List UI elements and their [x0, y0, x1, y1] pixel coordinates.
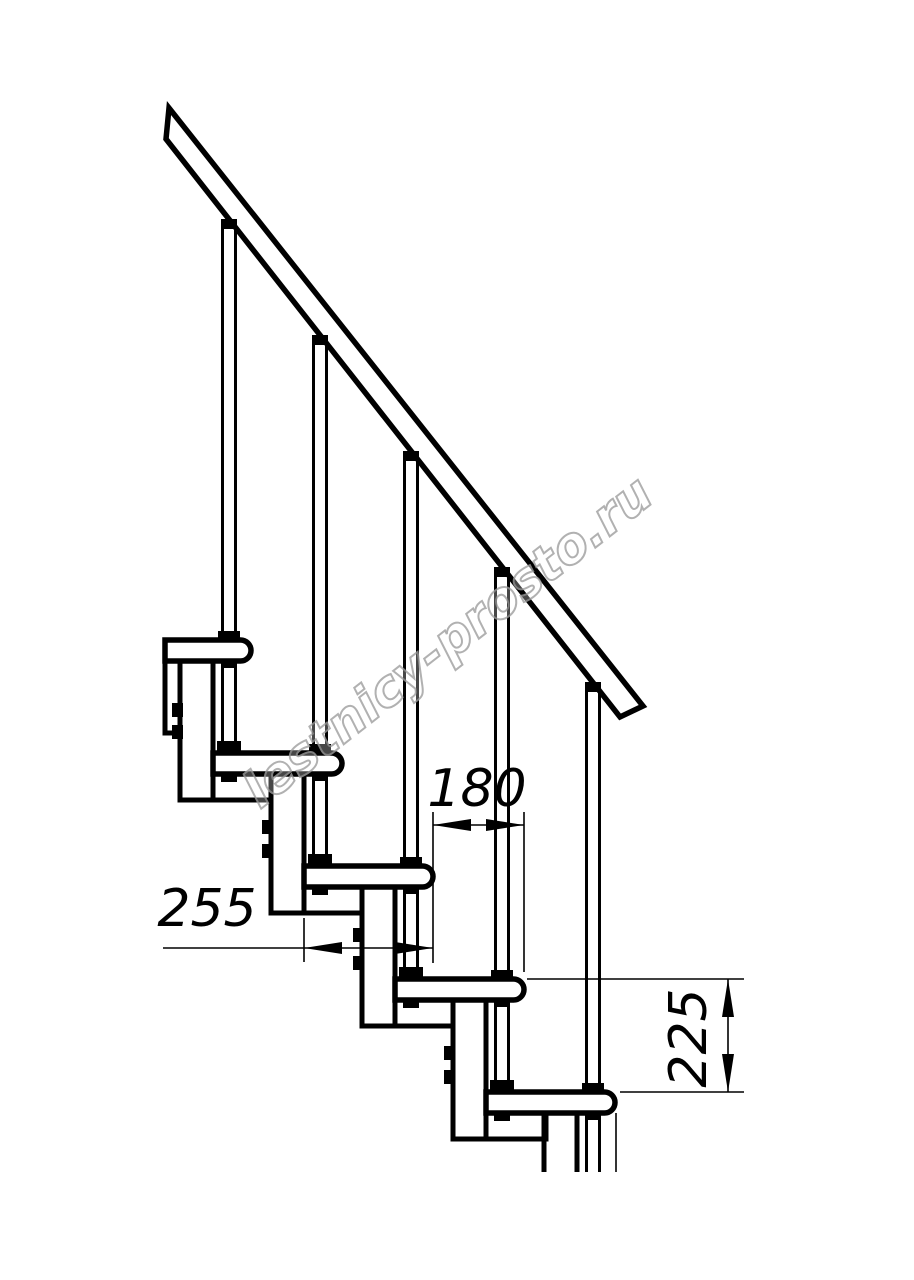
tread-5: [486, 1092, 615, 1113]
stringer-module-5: [486, 1113, 616, 1172]
stringer-module-3: [304, 887, 395, 1026]
tread-1: [165, 640, 251, 661]
dimension-step-rise: 225: [527, 979, 744, 1092]
dimension-label-180: 180: [427, 759, 526, 819]
staircase-technical-drawing: 180 255 225 lestnicy-prosto.ru: [0, 0, 914, 1280]
baluster-1: [223, 219, 236, 753]
stringer-module-1: [165, 661, 213, 800]
tread-4: [395, 979, 524, 1000]
baluster-3: [405, 451, 418, 979]
dimension-label-255: 255: [157, 879, 256, 939]
tread-3: [304, 866, 433, 887]
stringer-module-4: [395, 1000, 486, 1139]
baluster-4: [496, 567, 509, 1092]
dimension-step-run: 180: [427, 759, 526, 972]
baluster-2: [314, 335, 327, 866]
dimension-label-225: 225: [659, 988, 719, 1087]
drawing-canvas: 180 255 225 lestnicy-prosto.ru: [0, 0, 914, 1280]
